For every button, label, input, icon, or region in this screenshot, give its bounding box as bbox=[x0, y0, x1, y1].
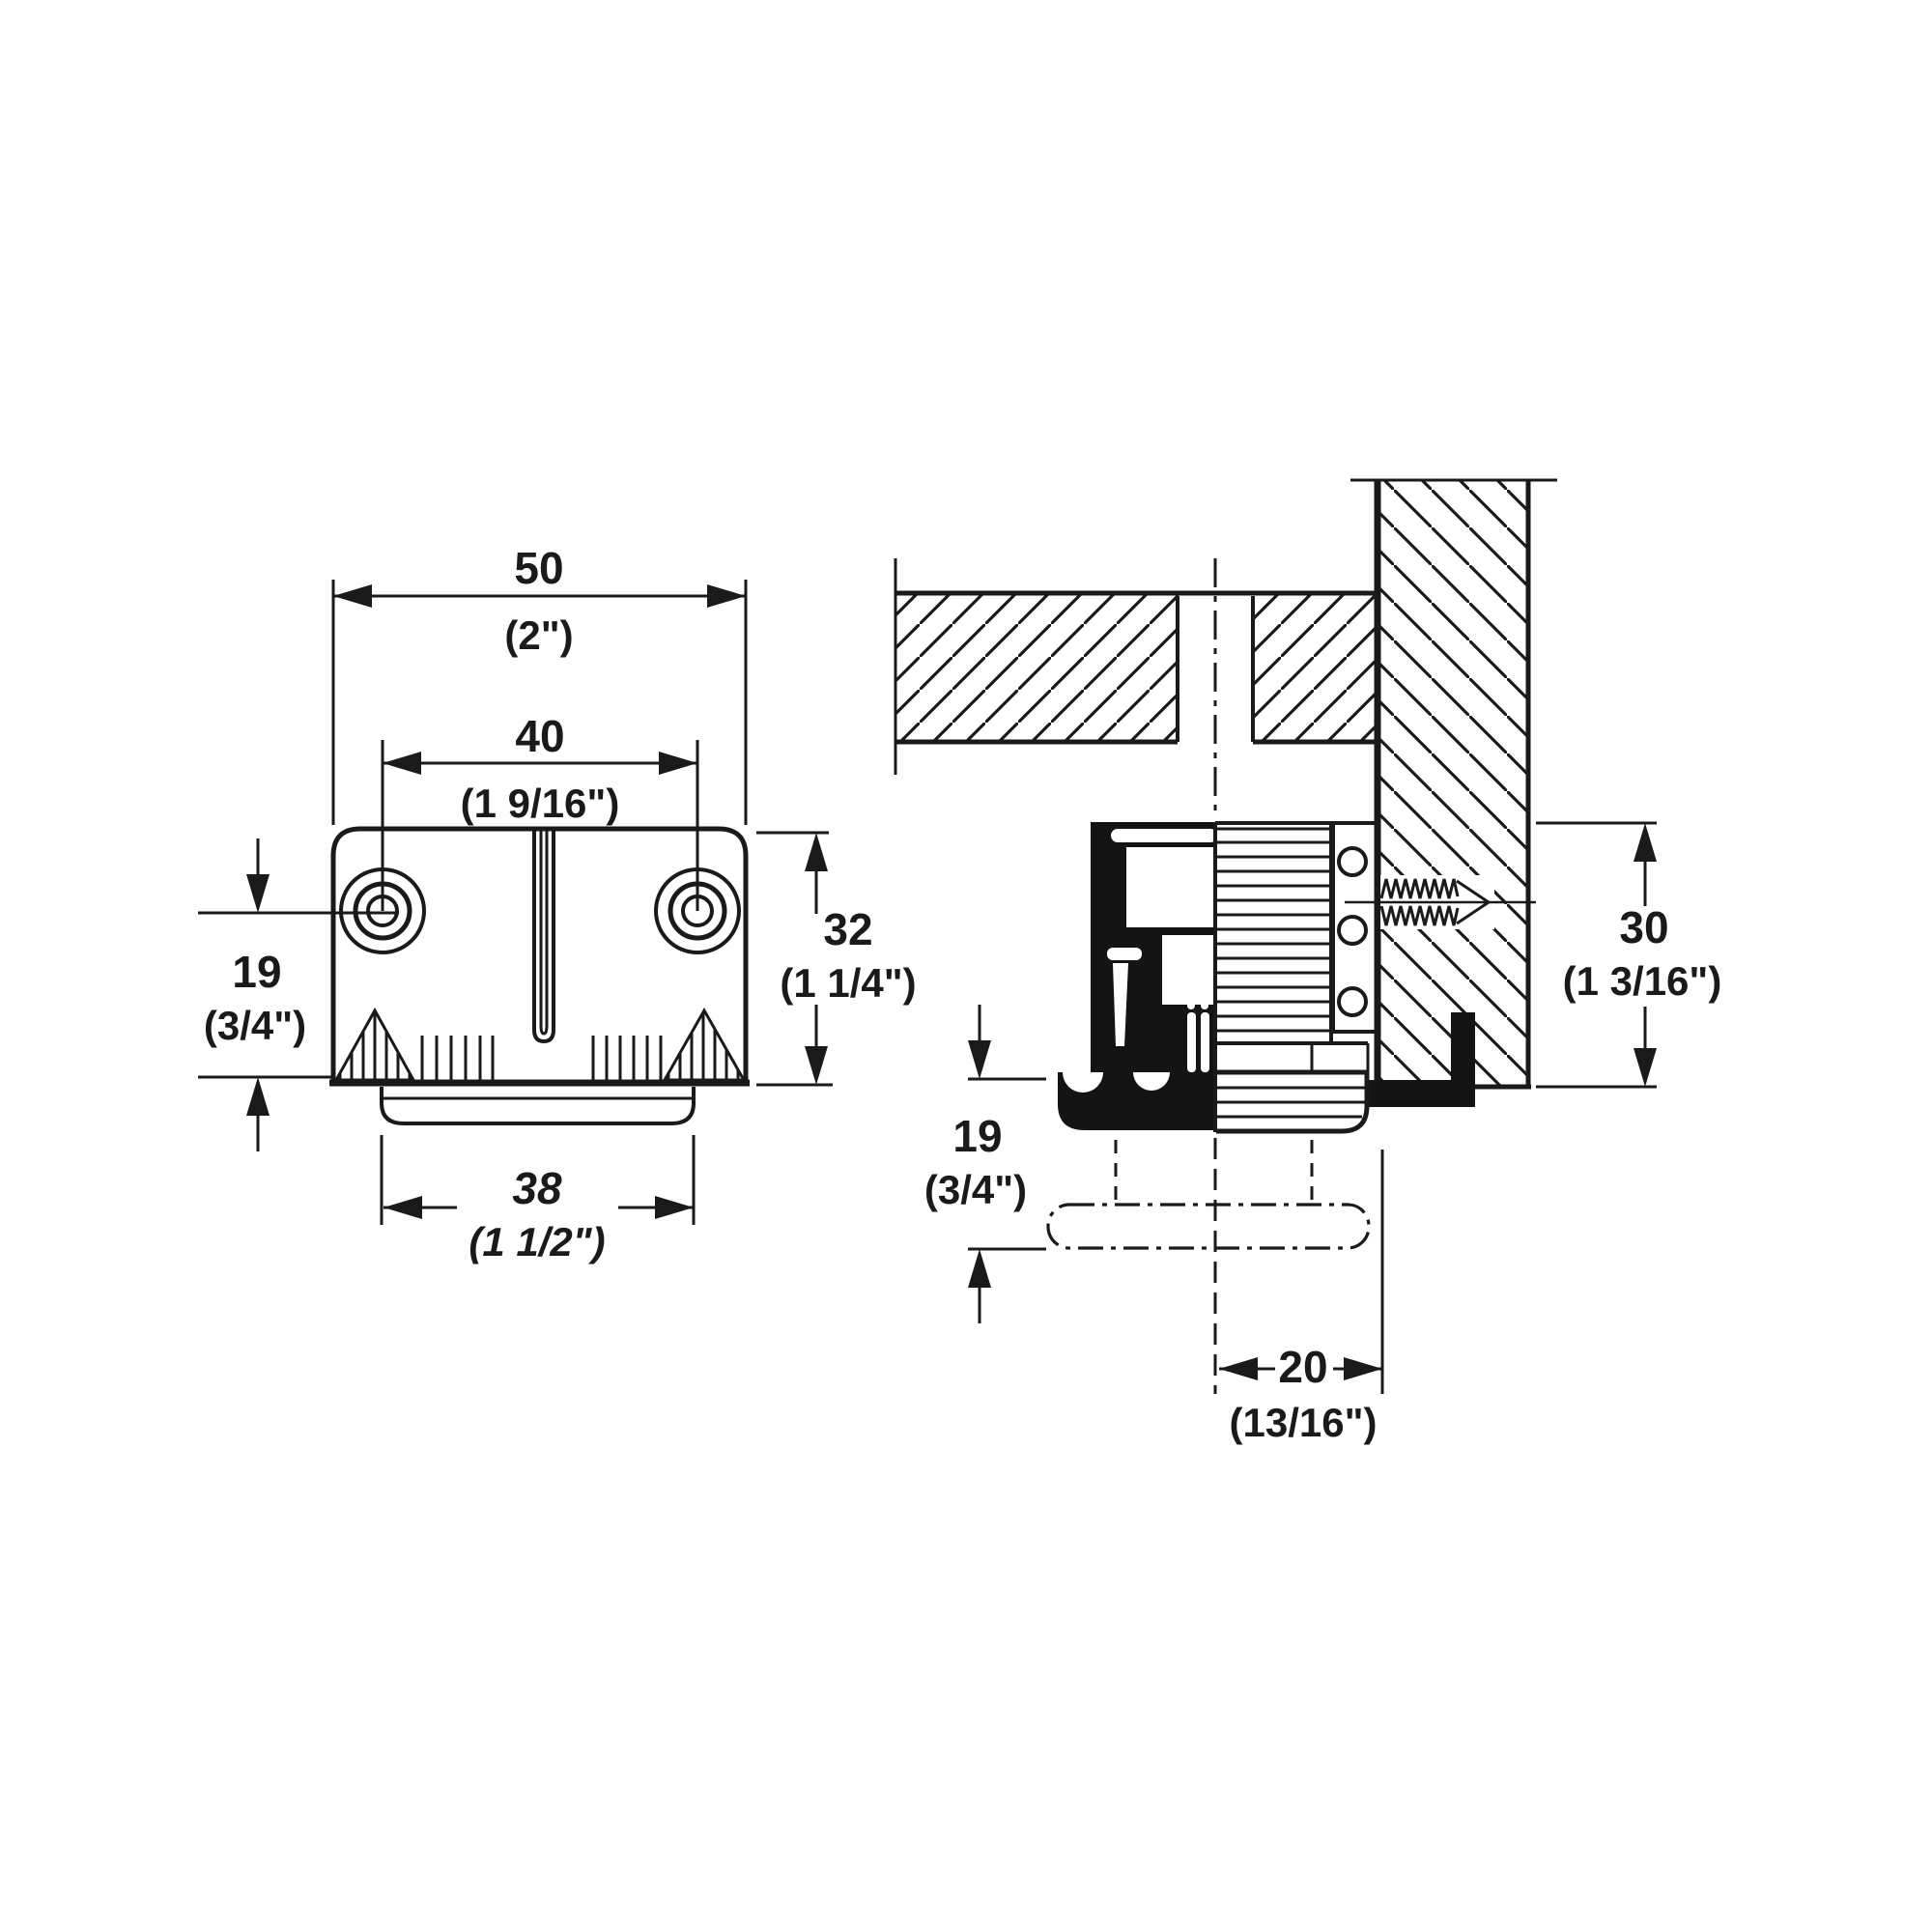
dim-hole-spacing-in: (1 9/16") bbox=[461, 781, 620, 826]
cabinet-side-panel bbox=[1350, 480, 1557, 1087]
dim-hole-offset-in: (3/4") bbox=[204, 1003, 306, 1048]
dim-mount-height-mm: 30 bbox=[1619, 902, 1668, 952]
dim-center-to-wall-mm: 20 bbox=[1278, 1342, 1327, 1392]
furniture-glide-drawing: 50 (2") 40 (1 9/16") 19 (3/4") 32 (1 1/4… bbox=[0, 0, 1932, 1932]
dim-base-width-mm: 38 bbox=[512, 1163, 562, 1213]
dim-hole-spacing-mm: 40 bbox=[515, 711, 564, 761]
dim-center-to-wall-in: (13/16") bbox=[1230, 1400, 1378, 1445]
dim-mount-height-in: (1 3/16") bbox=[1563, 958, 1722, 1004]
dim-base-width-in: (1 1/2") bbox=[469, 1219, 605, 1264]
dim-width-in: (2") bbox=[504, 612, 573, 658]
dim-adjustment-range-mm: 19 bbox=[952, 1111, 1002, 1161]
dim-height-in: (1 1/4") bbox=[780, 960, 916, 1006]
technical-drawing-page: 50 (2") 40 (1 9/16") 19 (3/4") 32 (1 1/4… bbox=[0, 0, 1932, 1932]
cabinet-bottom-panel bbox=[895, 558, 1378, 775]
dim-adjustment-range-in: (3/4") bbox=[924, 1167, 1027, 1212]
dim-hole-offset-mm: 19 bbox=[232, 947, 281, 997]
dim-width-mm: 50 bbox=[514, 543, 563, 593]
dim-height-mm: 32 bbox=[823, 904, 872, 954]
